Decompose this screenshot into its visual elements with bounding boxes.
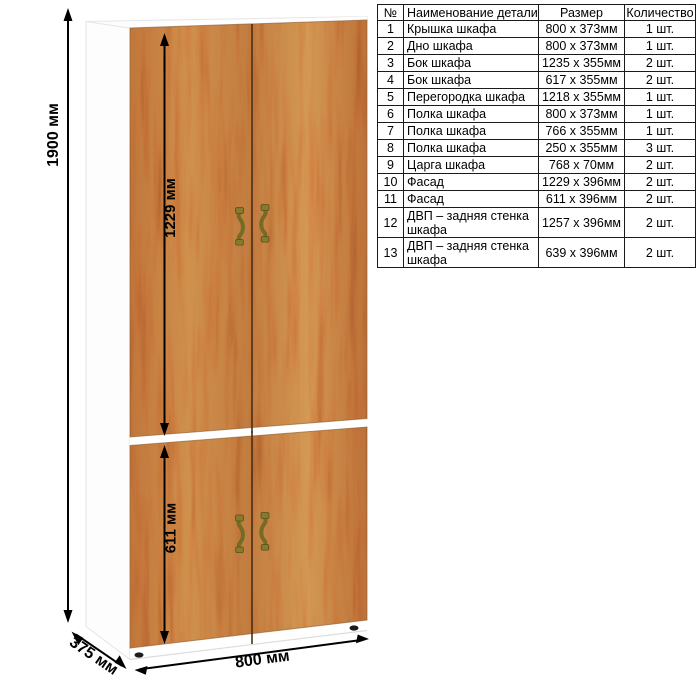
svg-text:611 мм: 611 мм — [163, 503, 180, 554]
svg-text:800 мм: 800 мм — [234, 648, 291, 672]
svg-text:1229 мм: 1229 мм — [162, 178, 179, 238]
svg-text:1900 мм: 1900 мм — [45, 103, 62, 167]
